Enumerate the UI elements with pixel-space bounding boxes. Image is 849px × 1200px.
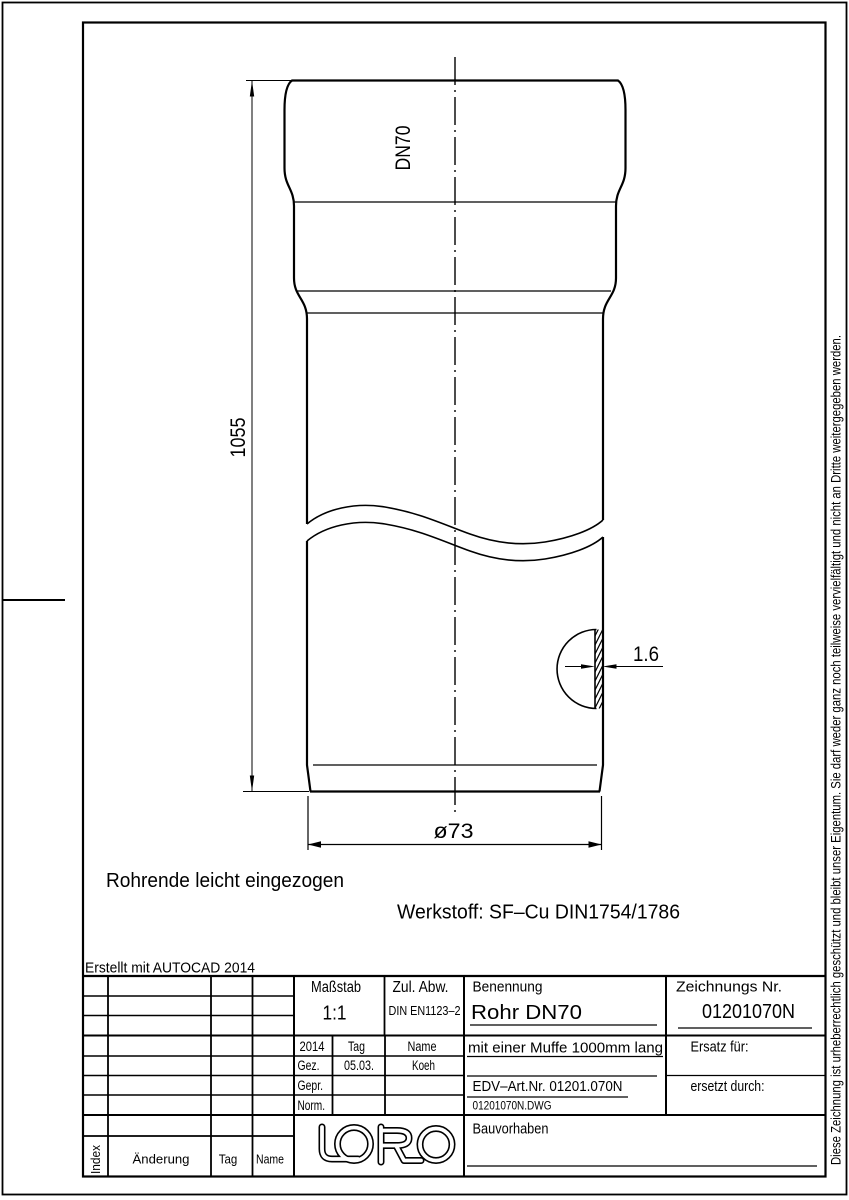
svg-text:Erstellt mit AUTOCAD 2014: Erstellt mit AUTOCAD 2014 <box>85 961 255 977</box>
svg-text:Bauvorhaben: Bauvorhaben <box>473 1121 549 1138</box>
svg-text:DIN EN1123–2: DIN EN1123–2 <box>389 1003 461 1018</box>
svg-text:Änderung: Änderung <box>133 1152 190 1167</box>
svg-text:Name: Name <box>408 1039 437 1054</box>
svg-text:Maßstab: Maßstab <box>311 979 361 996</box>
svg-text:Koeh: Koeh <box>412 1058 435 1073</box>
svg-text:01201070N: 01201070N <box>702 1001 795 1023</box>
svg-text:05.03.: 05.03. <box>344 1058 374 1073</box>
svg-text:DN70: DN70 <box>392 126 415 171</box>
svg-text:Norm.: Norm. <box>298 1098 326 1113</box>
svg-text:mit einer Muffe 1000mm lang: mit einer Muffe 1000mm lang <box>468 1041 663 1057</box>
svg-text:Diese Zeichnung ist urheberrec: Diese Zeichnung ist urheberrechtlich ges… <box>829 335 844 1165</box>
svg-text:Ersatz für:: Ersatz für: <box>691 1039 749 1056</box>
svg-text:2014: 2014 <box>300 1039 325 1054</box>
svg-text:1:1: 1:1 <box>323 1003 347 1025</box>
svg-text:1.6: 1.6 <box>633 643 659 666</box>
svg-text:Tag: Tag <box>348 1039 365 1054</box>
svg-text:Index: Index <box>88 1145 103 1174</box>
svg-text:Rohr DN70: Rohr DN70 <box>471 1002 582 1024</box>
svg-text:Zeichnungs Nr.: Zeichnungs Nr. <box>676 979 782 996</box>
svg-text:Benennung: Benennung <box>473 979 543 996</box>
svg-text:Gez.: Gez. <box>298 1058 320 1073</box>
svg-text:Werkstoff: SF–Cu DIN1754/1786: Werkstoff: SF–Cu DIN1754/1786 <box>397 902 680 924</box>
svg-text:1055: 1055 <box>227 418 250 458</box>
svg-text:Tag: Tag <box>219 1152 238 1167</box>
svg-text:ø73: ø73 <box>434 820 474 843</box>
svg-text:EDV–Art.Nr. 01201.070N: EDV–Art.Nr. 01201.070N <box>473 1079 623 1095</box>
svg-text:ersetzt durch:: ersetzt durch: <box>691 1078 765 1095</box>
svg-text:Zul. Abw.: Zul. Abw. <box>393 979 449 996</box>
svg-text:Name: Name <box>256 1152 284 1167</box>
svg-text:Rohrende leicht eingezogen: Rohrende leicht eingezogen <box>106 870 344 892</box>
svg-text:Gepr.: Gepr. <box>298 1078 324 1093</box>
svg-text:01201070N.DWG: 01201070N.DWG <box>473 1101 552 1113</box>
